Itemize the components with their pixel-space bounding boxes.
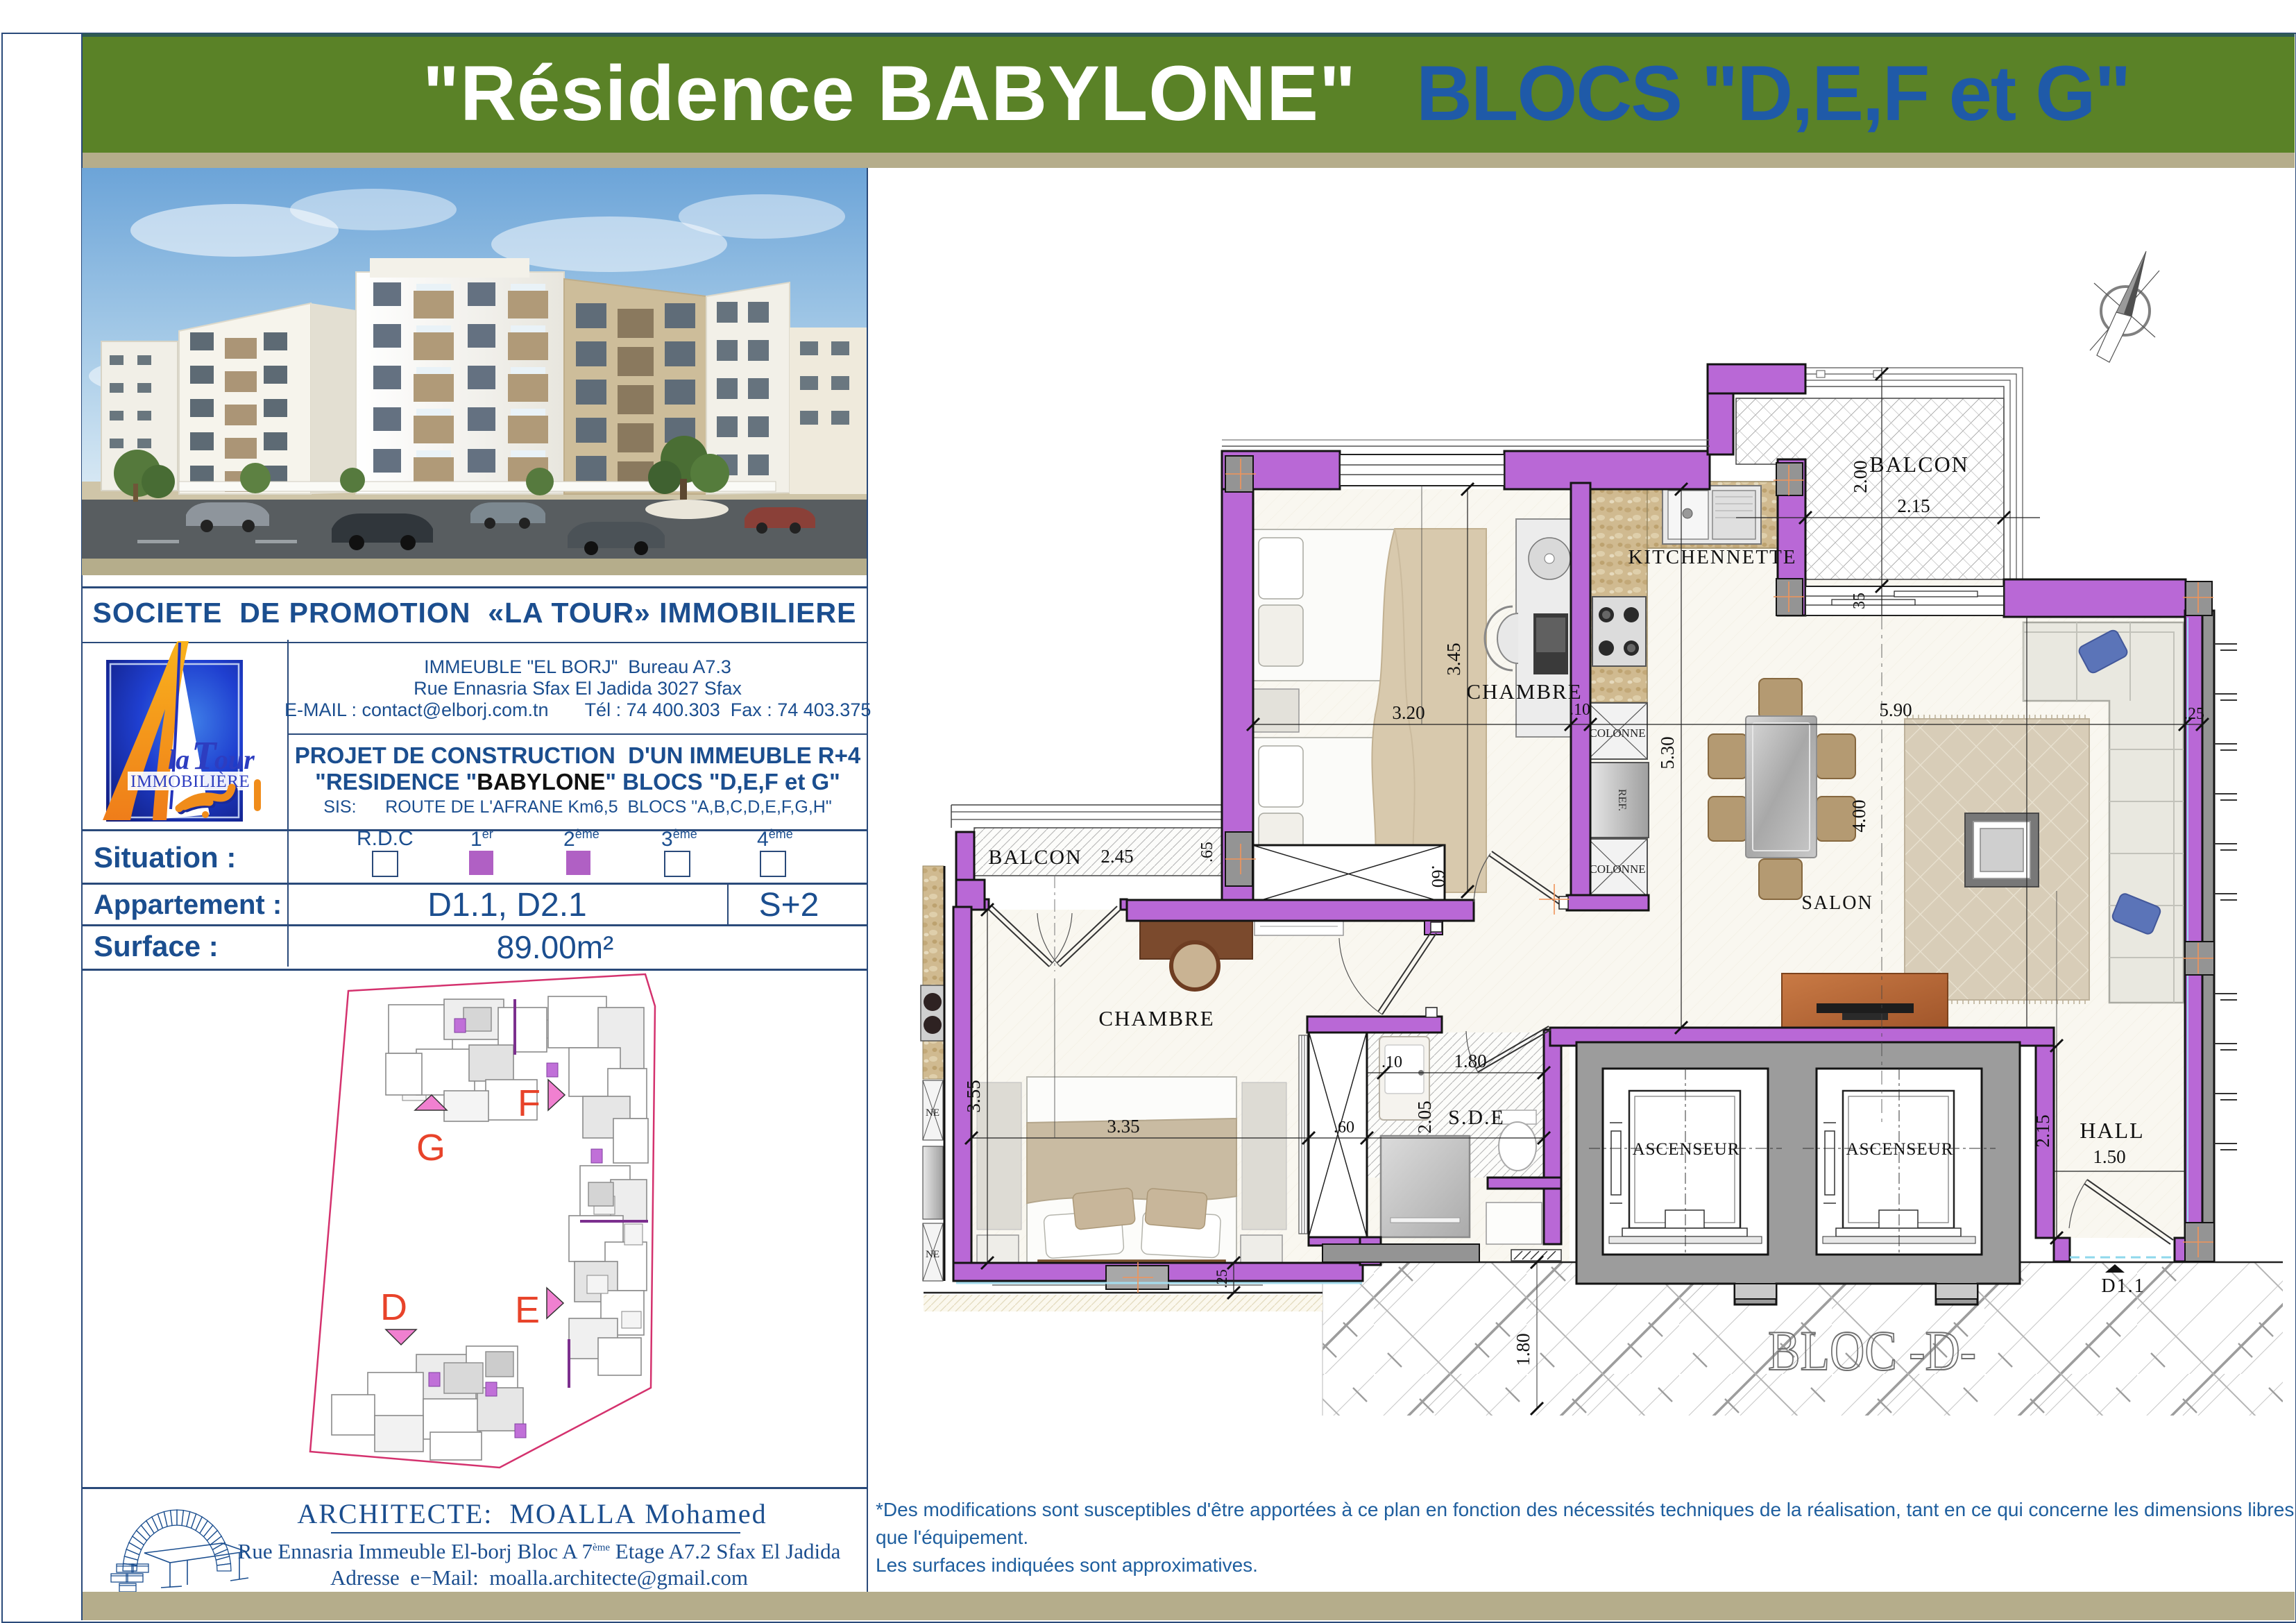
svg-text:S.D.E: S.D.E: [1448, 1106, 1505, 1129]
svg-text:1.80: 1.80: [1513, 1333, 1533, 1366]
svg-text:HALL: HALL: [2080, 1118, 2144, 1143]
svg-text:.65: .65: [1198, 842, 1216, 863]
svg-text:1.80: 1.80: [1454, 1051, 1486, 1071]
svg-text:3.35: 3.35: [1107, 1116, 1139, 1137]
svg-text:CHAMBRE: CHAMBRE: [1466, 679, 1582, 704]
svg-text:2.15: 2.15: [2032, 1114, 2053, 1147]
svg-text:3.20: 3.20: [1392, 702, 1425, 723]
svg-text:NE: NE: [926, 1107, 939, 1119]
svg-text:5.30: 5.30: [1657, 736, 1678, 769]
svg-text:35: 35: [1851, 593, 1869, 609]
svg-text:.60: .60: [1428, 865, 1448, 888]
svg-text:D: D: [380, 1286, 407, 1328]
svg-text:COLONNE: COLONNE: [1589, 863, 1645, 876]
svg-text:.10: .10: [1381, 1053, 1402, 1071]
svg-text:F: F: [518, 1082, 541, 1124]
svg-text:2.45: 2.45: [1100, 846, 1133, 867]
svg-text:REF.: REF.: [1616, 789, 1628, 811]
svg-text:.25: .25: [2184, 705, 2204, 723]
svg-text:2.15: 2.15: [1897, 495, 1930, 516]
svg-text:BALCON: BALCON: [1869, 452, 1969, 477]
svg-text:3.45: 3.45: [1443, 643, 1464, 675]
svg-text:2.00: 2.00: [1850, 460, 1871, 493]
svg-text:1.50: 1.50: [2093, 1146, 2125, 1167]
svg-text:SALON: SALON: [1801, 892, 1873, 914]
svg-text:KITCHENNETTE: KITCHENNETTE: [1628, 546, 1796, 568]
svg-text:CHAMBRE: CHAMBRE: [1098, 1006, 1214, 1030]
svg-text:COLONNE: COLONNE: [1589, 726, 1645, 740]
svg-text:.60: .60: [1334, 1119, 1354, 1137]
svg-text:NE: NE: [926, 1249, 939, 1260]
svg-text:.25: .25: [1213, 1269, 1230, 1289]
svg-text:4.00: 4.00: [1848, 799, 1869, 832]
svg-text:la: la: [168, 744, 189, 775]
svg-text:3.55: 3.55: [963, 1080, 984, 1112]
svg-text:ASCENSEUR: ASCENSEUR: [1633, 1140, 1740, 1159]
svg-text:5.90: 5.90: [1879, 699, 1912, 720]
svg-text:BALCON: BALCON: [988, 846, 1082, 869]
svg-text:D1.1: D1.1: [2101, 1275, 2145, 1297]
svg-text:ASCENSEUR: ASCENSEUR: [1846, 1140, 1954, 1159]
svg-text:our: our: [214, 744, 255, 775]
svg-text:2.05: 2.05: [1414, 1101, 1435, 1133]
svg-text:E: E: [515, 1289, 540, 1331]
svg-text:BLOC -D-: BLOC -D-: [1768, 1319, 1976, 1382]
svg-text:G: G: [416, 1127, 445, 1169]
